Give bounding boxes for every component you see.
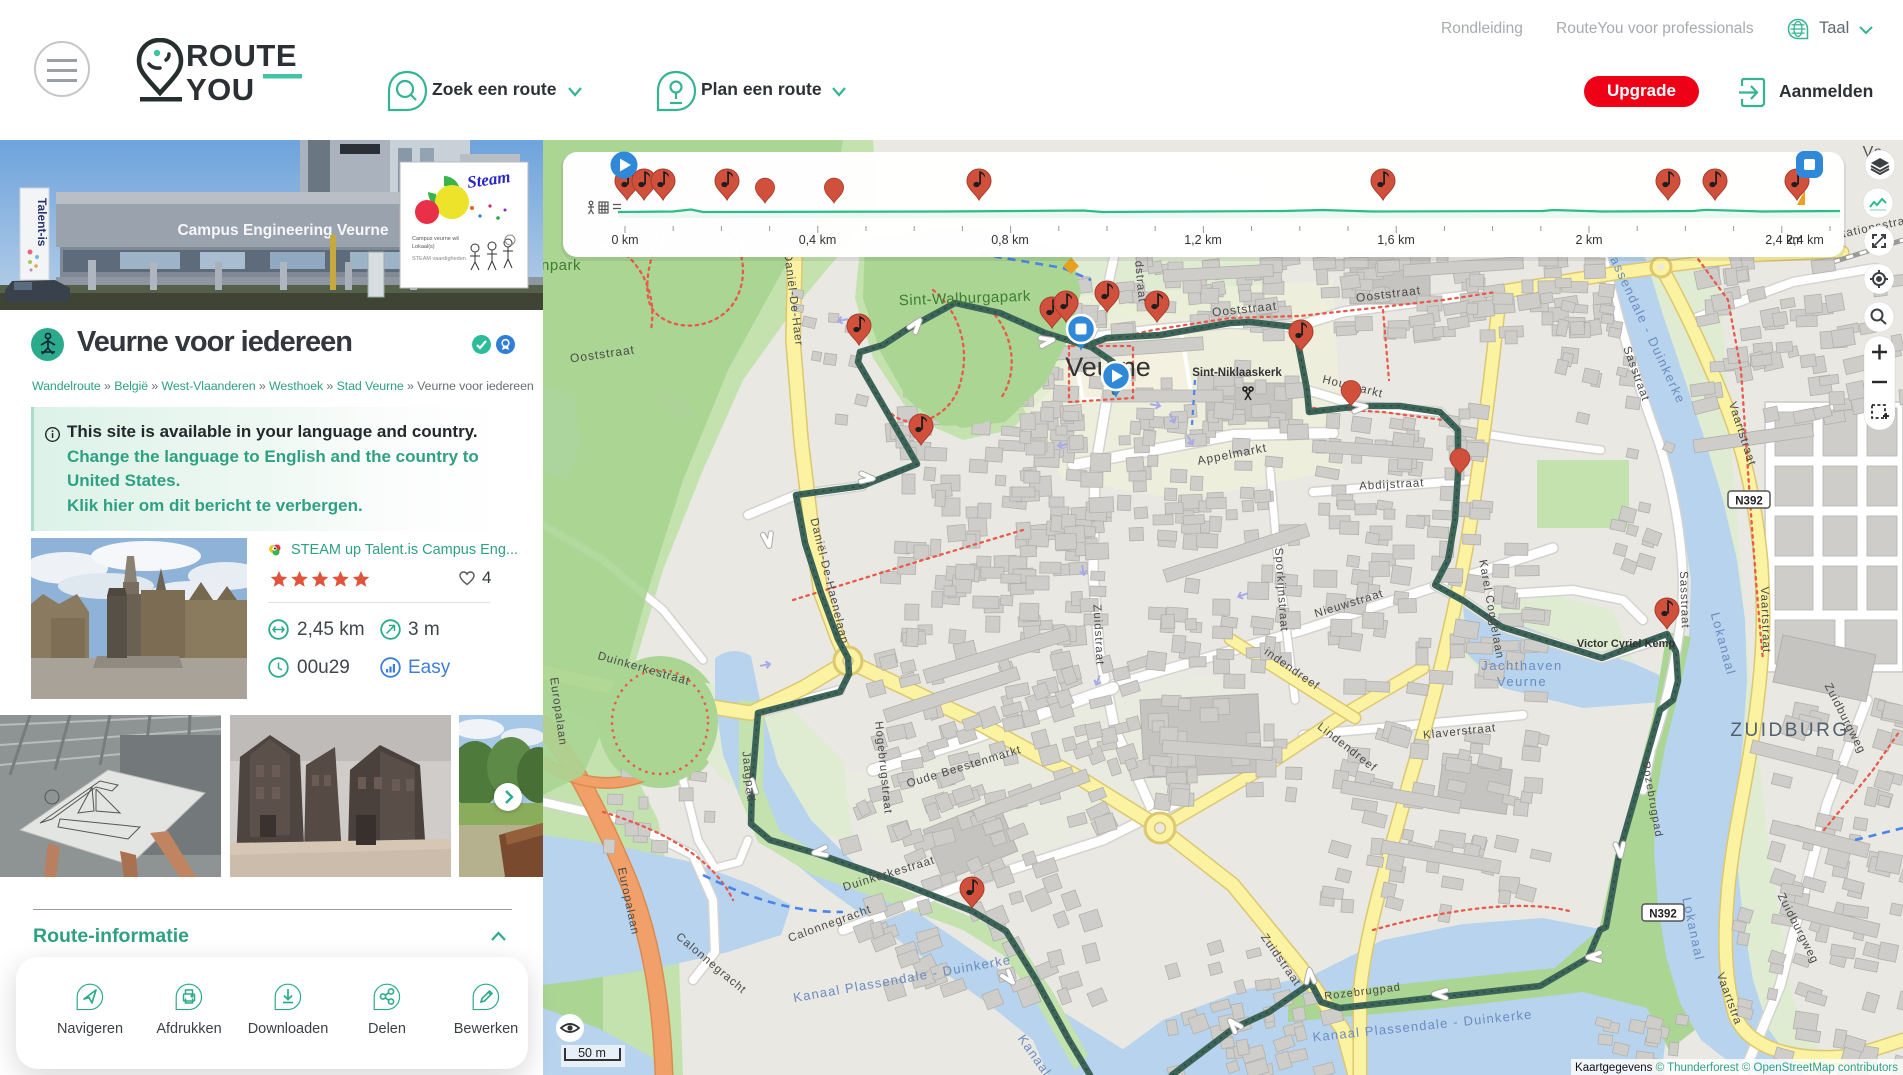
- svg-text:1,6 km: 1,6 km: [1377, 233, 1415, 247]
- svg-text:Campus Engineering Veurne: Campus Engineering Veurne: [177, 222, 388, 239]
- svg-text:Vaartstraat: Vaartstraat: [1758, 587, 1772, 654]
- svg-text:STEAM vaardigheden: STEAM vaardigheden: [412, 256, 466, 262]
- svg-text:ROUTE: ROUTE: [186, 38, 297, 73]
- svg-text:2 km: 2 km: [1575, 233, 1602, 247]
- svg-text:50 m: 50 m: [578, 1046, 606, 1060]
- svg-text:Sasstraat: Sasstraat: [1677, 571, 1691, 629]
- svg-text:0,4 km: 0,4 km: [799, 233, 837, 247]
- svg-text:0 km: 0 km: [611, 233, 638, 247]
- svg-text:YOU: YOU: [186, 72, 255, 107]
- svg-text:Sint-Niklaaskerk: Sint-Niklaaskerk: [1192, 367, 1282, 379]
- svg-text:N392: N392: [1735, 496, 1763, 508]
- svg-text:Kaartgegevens © Thunderforest: Kaartgegevens © Thunderforest © OpenStre…: [1575, 1062, 1898, 1074]
- svg-text:Veurne: Veurne: [1497, 674, 1547, 689]
- svg-text:Campus veurne wil: Campus veurne wil: [412, 236, 459, 242]
- svg-text:ZUIDBURG: ZUIDBURG: [1730, 720, 1849, 741]
- svg-text:1,2 km: 1,2 km: [1184, 233, 1222, 247]
- svg-text:2,4 km: 2,4 km: [1786, 233, 1824, 247]
- svg-text:Jachthaven: Jachthaven: [1481, 658, 1563, 673]
- svg-text:0,8 km: 0,8 km: [991, 233, 1029, 247]
- svg-text:Victor Cyriel Kemp: Victor Cyriel Kemp: [1577, 638, 1676, 650]
- svg-text:Lokaal(s): Lokaal(s): [412, 244, 435, 250]
- svg-text:Talent-is: Talent-is: [35, 198, 49, 247]
- svg-text:N392: N392: [1649, 909, 1677, 921]
